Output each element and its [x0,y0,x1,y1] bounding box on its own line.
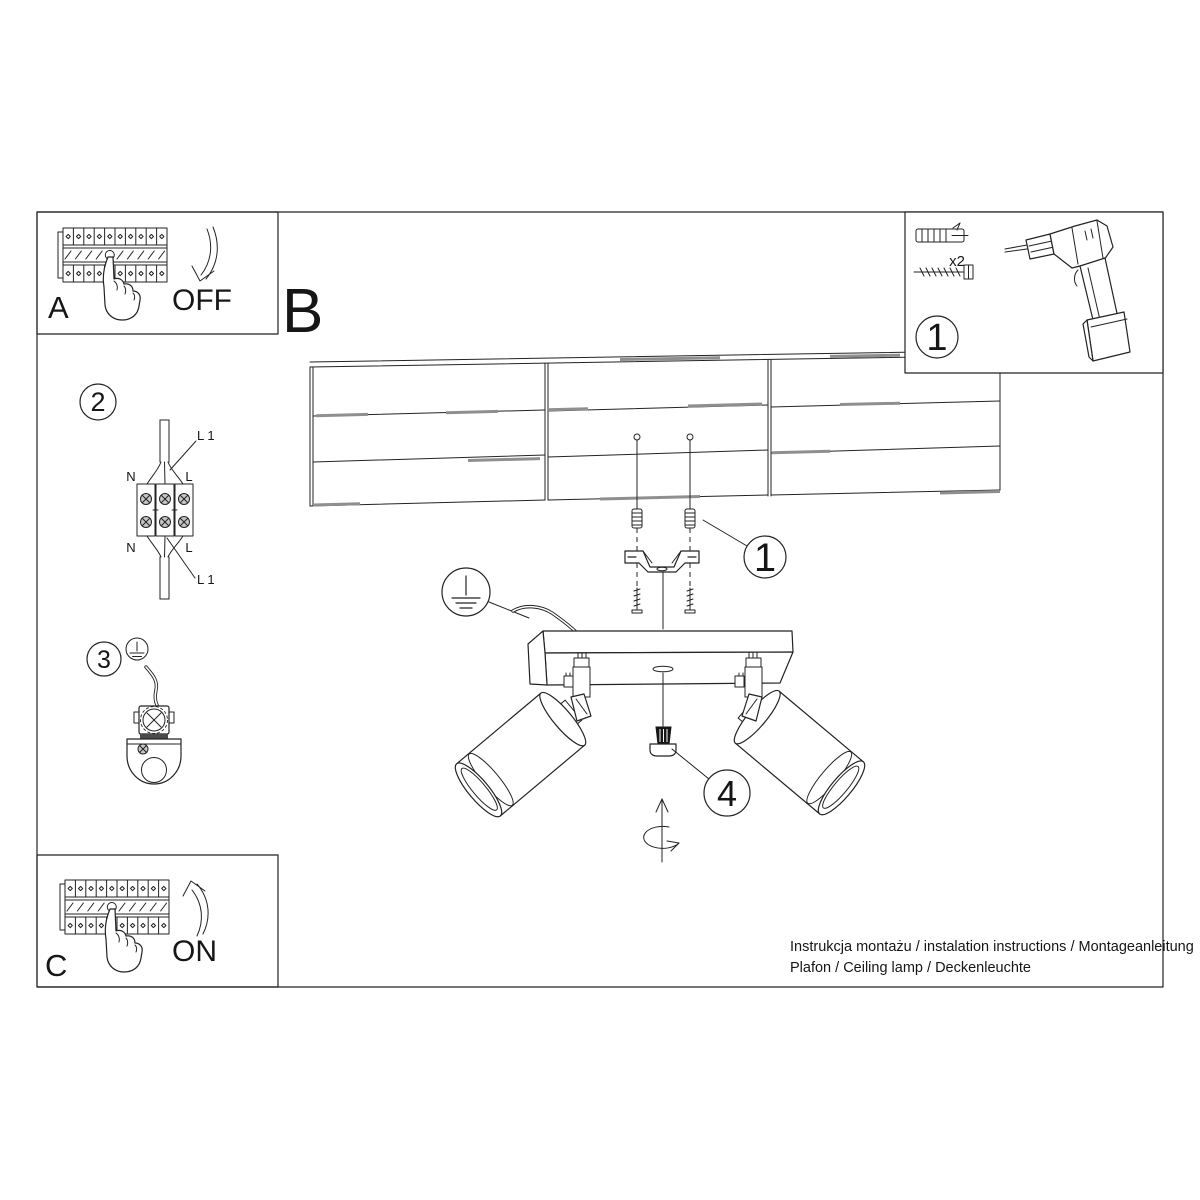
wall-plug-icon [632,509,642,528]
arrow-down-icon [192,227,217,281]
l1-label-bottom: L 1 [197,572,215,587]
footer-line-1: Instrukcja montażu / instalation instruc… [790,939,1194,955]
arrow-up-icon [183,881,208,936]
line-label-top: L [185,469,192,484]
step-2-number: 2 [90,387,105,417]
center-hole [653,666,673,672]
kit-number: 1 [926,317,947,359]
l1-leader-top [170,441,196,470]
ground-leader-line [489,602,529,618]
knurled-knob-icon [650,727,676,756]
panel-kit: x2 1 [905,212,1163,373]
section-b-label: B [282,277,323,346]
step-wiring: 2 L 1 N L N L [80,384,215,599]
panel-a: A OFF [37,212,278,334]
cable-top [160,420,169,462]
ground-wire [146,667,157,705]
callout-bracket-number: 1 [754,536,776,580]
cable-bottom [160,557,169,599]
instruction-diagram: 1 [0,0,1200,1200]
ground-symbol-small [126,638,148,660]
off-label: OFF [172,284,232,317]
mounting-hardware: 1 [625,434,786,629]
callout-leader-line [672,749,709,779]
ground-symbol [442,568,490,616]
mounting-screw-icon [685,588,695,613]
terminal-block [137,484,193,536]
footer-line-2: Plafon / Ceiling lamp / Deckenleuchte [790,960,1031,976]
panel-c-label: C [45,948,67,983]
rotation-arrow-icon [644,799,679,862]
ground-clamp-icon [127,706,181,784]
step-3-number: 3 [97,646,111,674]
callout-leader-line [703,520,747,546]
on-label: ON [172,935,217,968]
mounting-bracket-icon [625,551,699,572]
step-ground: 3 [87,638,181,784]
screw-head-icon [634,434,640,440]
callout-knob-number: 4 [717,773,737,814]
instruction-sheet: 1 [0,0,1200,1200]
neutral-label-bottom: N [126,540,135,555]
panel-c: C ON [37,855,278,987]
wall-plug-icon [685,509,695,528]
l1-label-top: L 1 [197,428,215,443]
mounting-screw-icon [632,588,642,613]
power-cord [513,607,577,633]
kit-quantity-label: x2 [949,253,965,270]
footer-text: Instrukcja montażu / instalation instruc… [790,939,1194,976]
neutral-label-top: N [126,469,135,484]
panel-a-label: A [48,290,69,325]
adjust-knob-assembly: 4 [644,673,750,862]
line-label-bottom: L [185,540,192,555]
screw-head-icon [687,434,693,440]
